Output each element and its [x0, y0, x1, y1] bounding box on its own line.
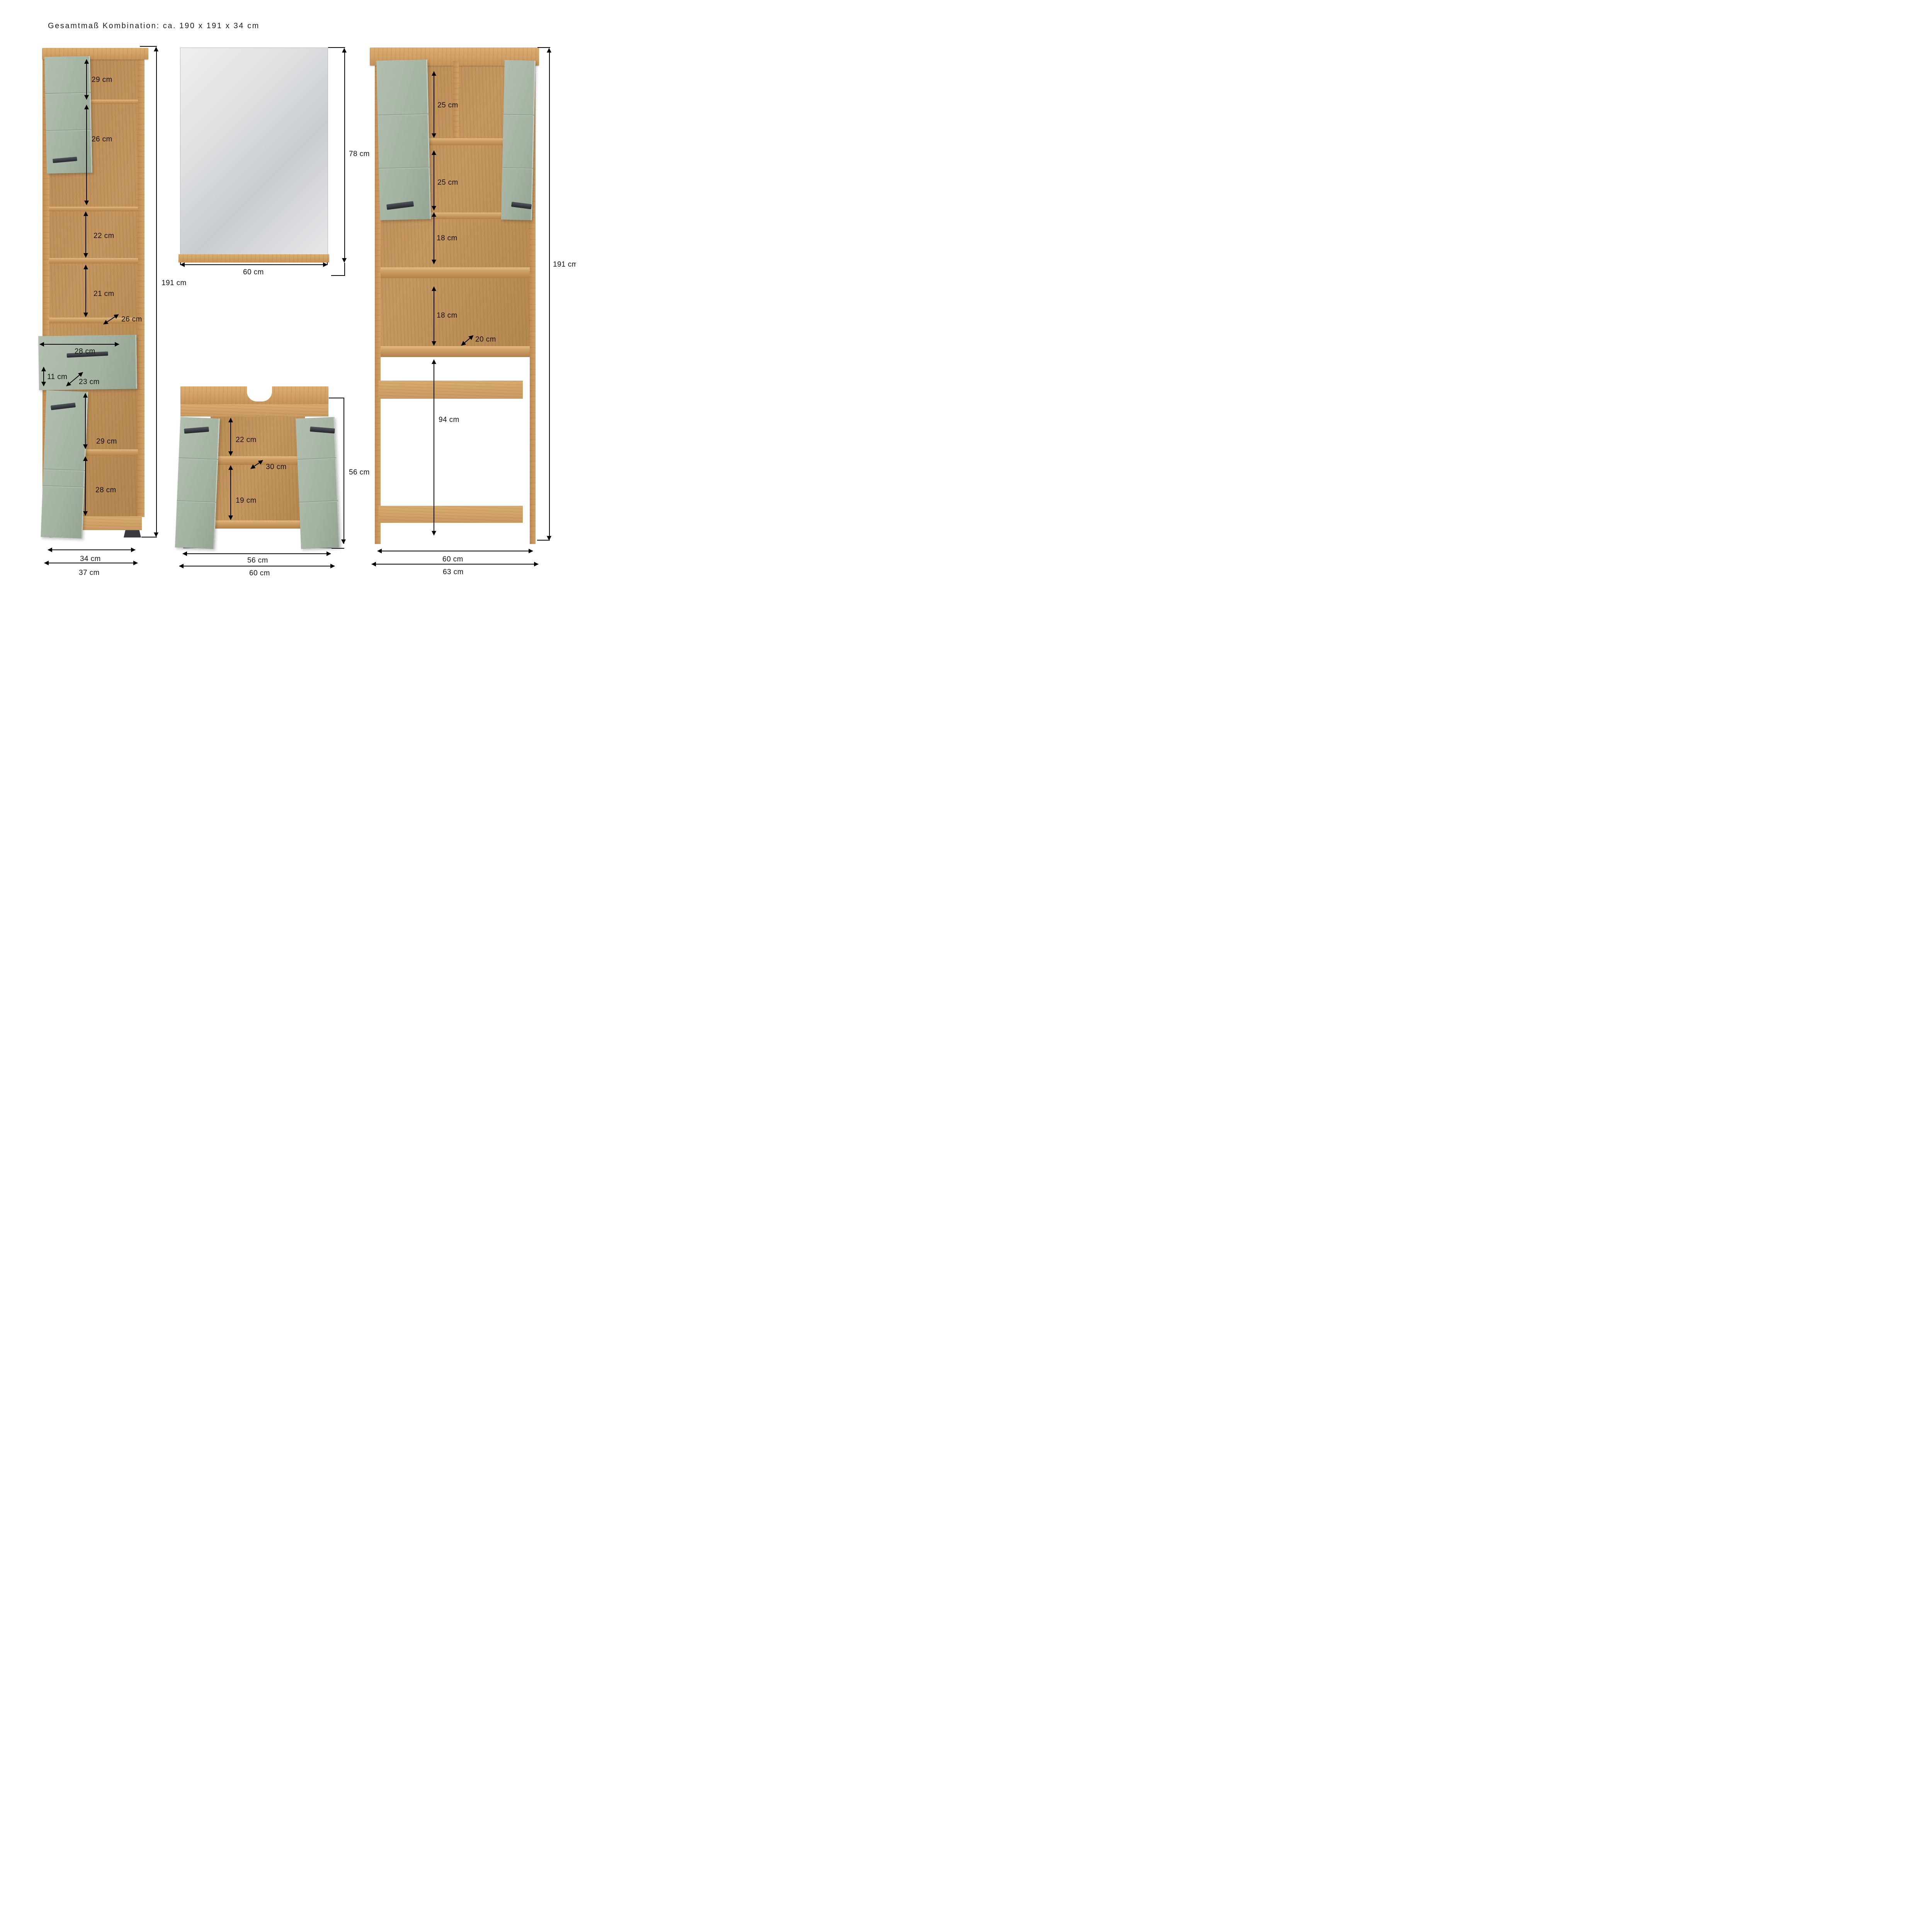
dim-label-18cm-upper: 18 cm — [437, 234, 457, 243]
dim-arrow-11cm — [43, 367, 44, 386]
dim-label-28cm-width: 28 cm — [75, 347, 95, 356]
dim-label-29cm-door: 29 cm — [96, 437, 117, 446]
dim-arrow-28cm-bottom — [85, 457, 86, 515]
vanity-left-door — [175, 417, 220, 549]
dim-label-29cm-top: 29 cm — [92, 76, 112, 84]
dim-line-191r-bottom-connector — [537, 540, 550, 541]
dim-arrow-19cm — [230, 466, 231, 520]
dim-label-26cm: 26 cm — [92, 135, 112, 144]
dim-arrow-25cm-top — [434, 71, 434, 138]
dim-label-56cm-height: 56 cm — [349, 468, 370, 477]
dim-label-56cm-width: 56 cm — [247, 556, 268, 565]
dim-label-191cm-right: 191 cm — [553, 260, 576, 269]
dim-arrow-21cm — [85, 265, 86, 317]
dim-arrow-63cm — [372, 564, 538, 565]
dim-arrow-29cm-top — [86, 60, 87, 99]
door-handle — [511, 202, 532, 209]
dim-line-191r-vertical — [549, 51, 550, 536]
dim-label-18cm-lower: 18 cm — [437, 311, 457, 320]
door-groove — [378, 114, 429, 116]
vanity-apron — [180, 404, 328, 417]
dim-line-78-vertical — [344, 51, 345, 258]
dim-line-191-vertical — [156, 50, 157, 533]
dim-line-56-bottom-connector — [332, 548, 344, 549]
dim-label-28cm-bottom: 28 cm — [95, 486, 116, 495]
tower-shelf-3 — [381, 267, 530, 278]
dim-line-78-elbow-horizontal — [331, 275, 345, 276]
dim-arrow-18cm-lower — [434, 287, 434, 345]
dim-label-63cm: 63 cm — [443, 568, 464, 577]
tower-right-door — [501, 60, 536, 220]
door-handle — [386, 201, 414, 210]
tower-lower-crossbar — [379, 506, 523, 523]
dim-label-11cm: 11 cm — [47, 373, 67, 381]
page-title: Gesamtmaß Kombination: ca. 190 x 191 x 3… — [48, 22, 260, 31]
dim-label-78cm: 78 cm — [349, 150, 370, 158]
dim-arrow-22cm — [85, 212, 86, 257]
door-groove — [297, 457, 336, 460]
dim-label-94cm: 94 cm — [439, 416, 459, 424]
dim-label-60cm-width: 60 cm — [249, 569, 270, 578]
dim-label-19cm: 19 cm — [236, 497, 257, 505]
dim-arrowhead-down — [342, 258, 347, 263]
dim-label-37cm: 37 cm — [79, 569, 100, 577]
vanity-bottom-panel — [213, 520, 302, 529]
tower-left-door — [376, 60, 431, 220]
door-groove — [43, 469, 85, 471]
dim-line-191-bottom-connector — [141, 537, 157, 537]
door-groove — [45, 92, 91, 94]
dim-arrow-60cm-mirror — [180, 264, 327, 265]
dim-label-191cm-left: 191 cm — [162, 279, 187, 287]
dim-arrow-26cm — [86, 105, 87, 205]
door-groove — [503, 114, 534, 116]
tall-cabinet-foot-right — [124, 530, 141, 537]
dim-label-21cm: 21 cm — [94, 290, 114, 298]
dim-label-20cm-depth: 20 cm — [475, 335, 496, 344]
dim-arrow-18cm-upper — [434, 213, 434, 264]
mirror-shelf — [179, 254, 329, 262]
dim-arrow-29cm-door — [85, 393, 86, 449]
tall-cabinet-shelf-3 — [49, 258, 138, 264]
vanity-siphon-notch — [247, 386, 272, 401]
dim-arrow-28cm-width — [40, 344, 119, 345]
door-handle — [51, 403, 76, 410]
vanity-back-panel — [211, 417, 305, 529]
tall-cabinet-upper-door — [44, 56, 92, 173]
dim-label-30cm-depth: 30 cm — [266, 463, 287, 471]
tower-machine-opening — [381, 357, 530, 506]
dim-arrow-22cm-vanity — [230, 418, 231, 456]
dim-label-26cm-depth: 26 cm — [121, 315, 142, 324]
mirror-glass — [180, 48, 328, 255]
dim-label-22cm-vanity: 22 cm — [236, 436, 257, 444]
dim-label-34cm: 34 cm — [80, 555, 101, 563]
dim-arrow-56cm-width — [183, 553, 331, 554]
dim-label-25cm-bottom: 25 cm — [437, 179, 458, 187]
door-groove — [43, 485, 84, 488]
dim-arrow-94cm — [434, 360, 434, 535]
dim-arrow-34cm — [48, 549, 135, 550]
door-handle — [53, 156, 77, 163]
dim-line-56-vertical — [344, 398, 344, 544]
door-groove — [299, 500, 338, 503]
tower-upper-crossbar — [379, 381, 523, 399]
dim-label-60cm-tower: 60 cm — [442, 555, 463, 564]
dim-arrow-60cm-tower — [378, 551, 533, 551]
tall-cabinet-shelf-2 — [49, 207, 138, 211]
door-groove — [379, 167, 430, 169]
door-groove — [46, 129, 92, 131]
dimension-diagram: Gesamtmaß Kombination: ca. 190 x 191 x 3… — [0, 0, 576, 604]
dim-line-56-top-connector — [329, 398, 344, 398]
door-handle — [184, 427, 209, 434]
dim-arrowhead-down — [341, 539, 346, 544]
dim-line-78-elbow-vertical — [344, 263, 345, 276]
dim-arrow-25cm-bottom — [434, 151, 434, 210]
dim-label-22cm: 22 cm — [94, 232, 114, 240]
dim-label-25cm-top: 25 cm — [437, 101, 458, 110]
dim-arrow-60cm-width — [179, 566, 335, 566]
door-handle — [310, 427, 335, 434]
door-groove — [502, 167, 533, 169]
door-groove — [179, 457, 218, 460]
vanity-right-door — [296, 417, 340, 549]
door-groove — [177, 500, 216, 503]
tall-cabinet-lower-door — [41, 390, 88, 539]
dim-label-60cm-mirror: 60 cm — [243, 268, 264, 277]
tower-shelf-4 — [381, 346, 530, 357]
tall-cabinet-right-wall — [138, 59, 145, 517]
dim-label-23cm-depth: 23 cm — [79, 378, 100, 386]
